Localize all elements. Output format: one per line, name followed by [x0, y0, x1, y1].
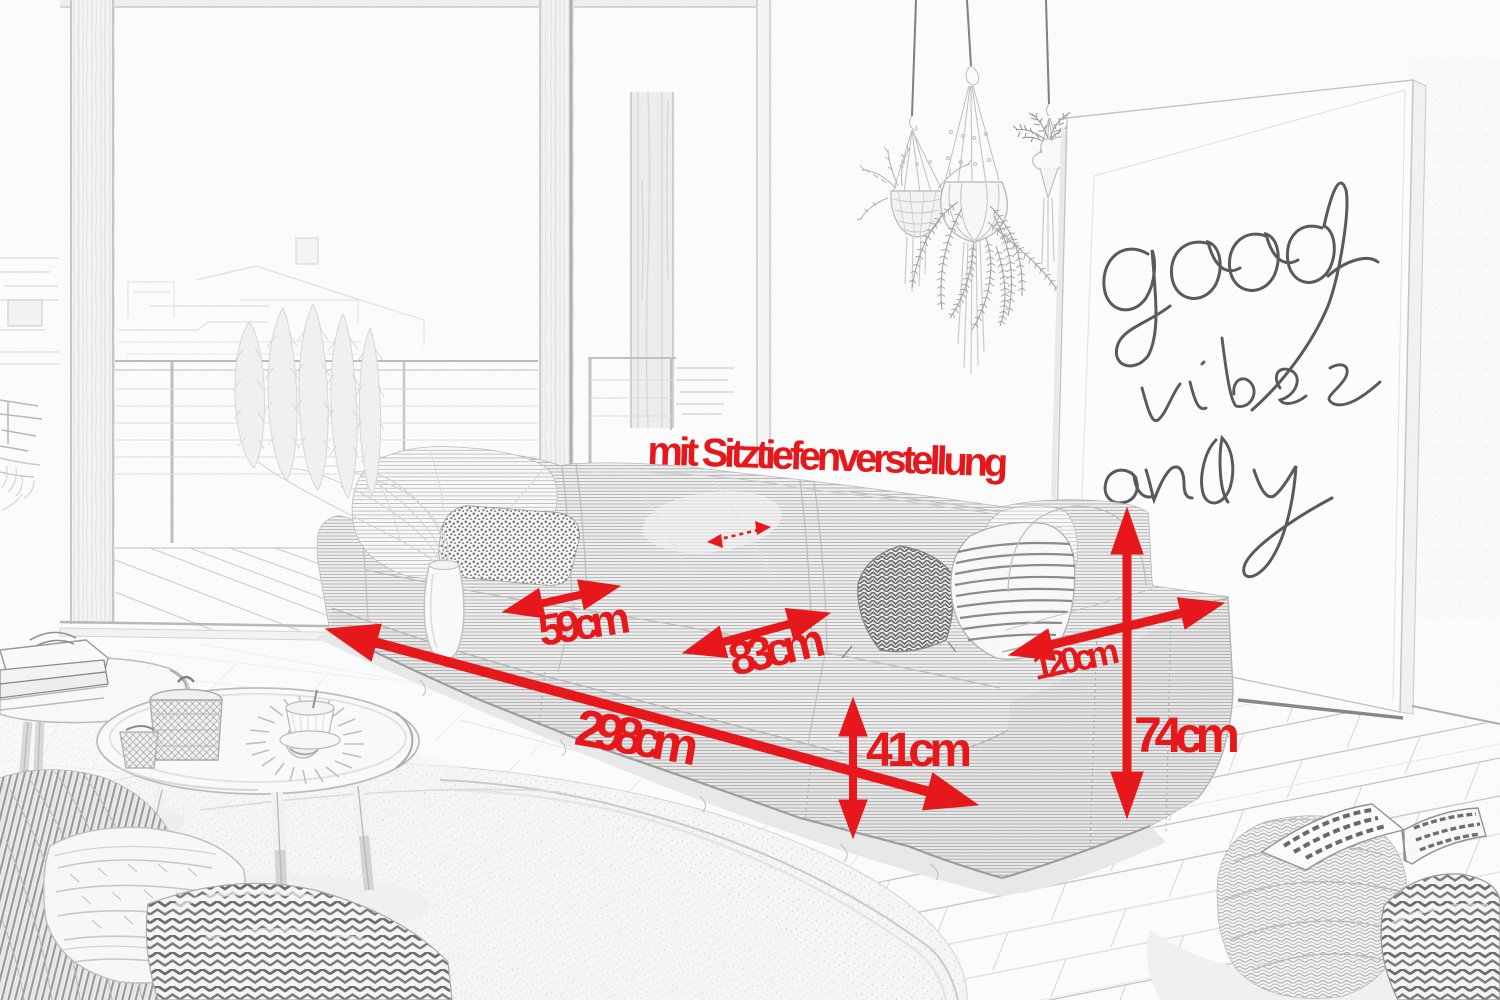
svg-text:74cm: 74cm: [1134, 707, 1240, 763]
svg-text:41cm: 41cm: [866, 724, 972, 777]
